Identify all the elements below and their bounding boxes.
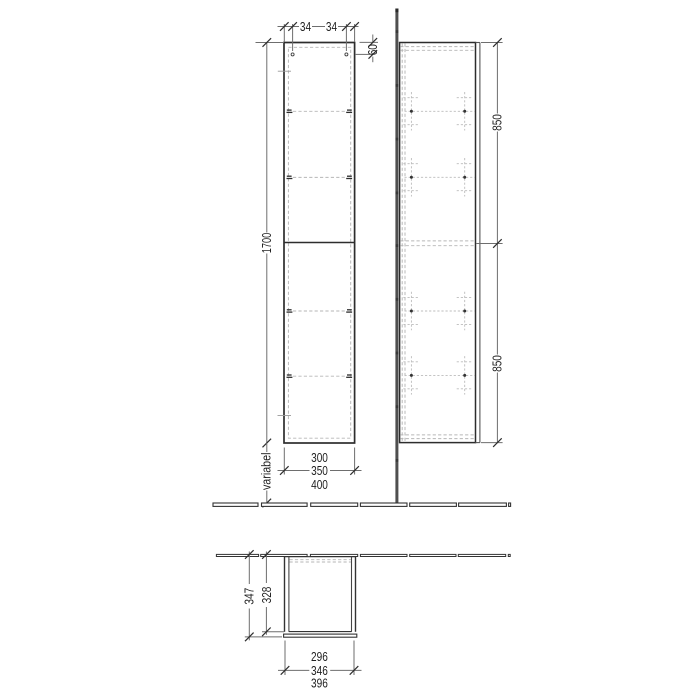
svg-text:396: 396 bbox=[311, 676, 328, 691]
svg-text:34: 34 bbox=[300, 19, 311, 34]
svg-text:1700: 1700 bbox=[259, 233, 274, 254]
svg-text:328: 328 bbox=[259, 587, 274, 604]
svg-text:850: 850 bbox=[489, 114, 504, 131]
svg-text:400: 400 bbox=[311, 477, 328, 492]
svg-text:350: 350 bbox=[311, 463, 328, 478]
svg-text:variabel: variabel bbox=[258, 452, 273, 490]
svg-text:60: 60 bbox=[365, 44, 380, 55]
svg-text:296: 296 bbox=[311, 649, 328, 664]
svg-text:347: 347 bbox=[242, 588, 257, 605]
svg-text:850: 850 bbox=[489, 355, 504, 372]
svg-text:34: 34 bbox=[326, 19, 337, 34]
